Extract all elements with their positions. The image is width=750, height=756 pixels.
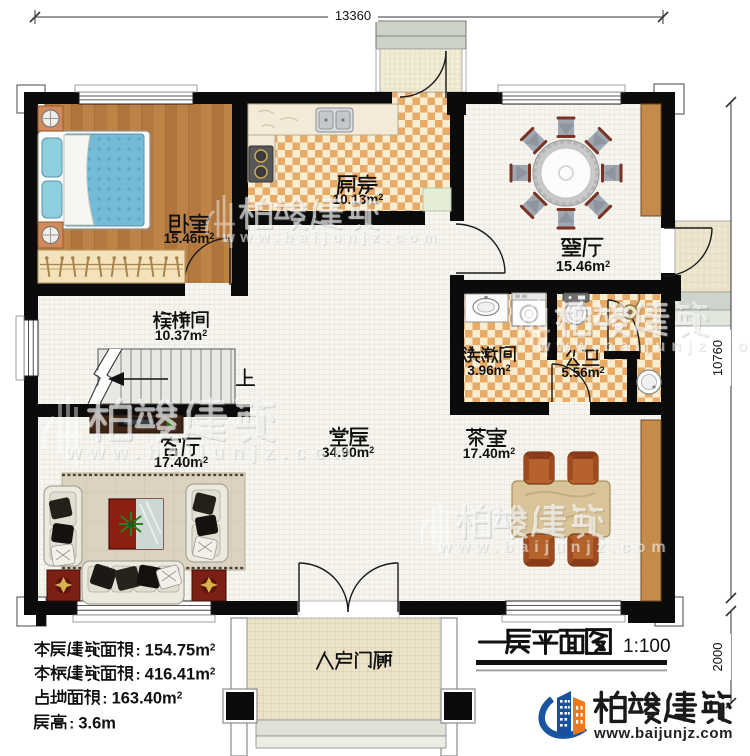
svg-text:17.40m2: 17.40m2 [463, 445, 516, 461]
svg-text:: 416.41m2: : 416.41m2 [136, 666, 216, 684]
svg-text:www.baijunjz.com: www.baijunjz.com [593, 725, 733, 742]
svg-text:3.96m2: 3.96m2 [467, 363, 510, 378]
svg-text:: 3.6m: : 3.6m [69, 715, 116, 733]
svg-text:www.baijunjz.com: www.baijunjz.com [438, 539, 672, 556]
svg-text:10.37m2: 10.37m2 [155, 327, 208, 343]
svg-text:www.baijunjz.com: www.baijunjz.com [222, 229, 442, 246]
svg-text:www.baijunjz.com: www.baijunjz.com [65, 442, 359, 464]
svg-text:2000: 2000 [710, 643, 725, 672]
svg-text:13360: 13360 [335, 8, 371, 23]
svg-text:5.56m2: 5.56m2 [561, 365, 604, 380]
svg-text:: 163.40m2: : 163.40m2 [102, 690, 182, 708]
svg-text:10760: 10760 [710, 340, 725, 376]
svg-text:15.46m2: 15.46m2 [556, 259, 610, 275]
svg-text:1:100: 1:100 [623, 636, 671, 657]
svg-text:: 154.75m2: : 154.75m2 [136, 642, 216, 660]
